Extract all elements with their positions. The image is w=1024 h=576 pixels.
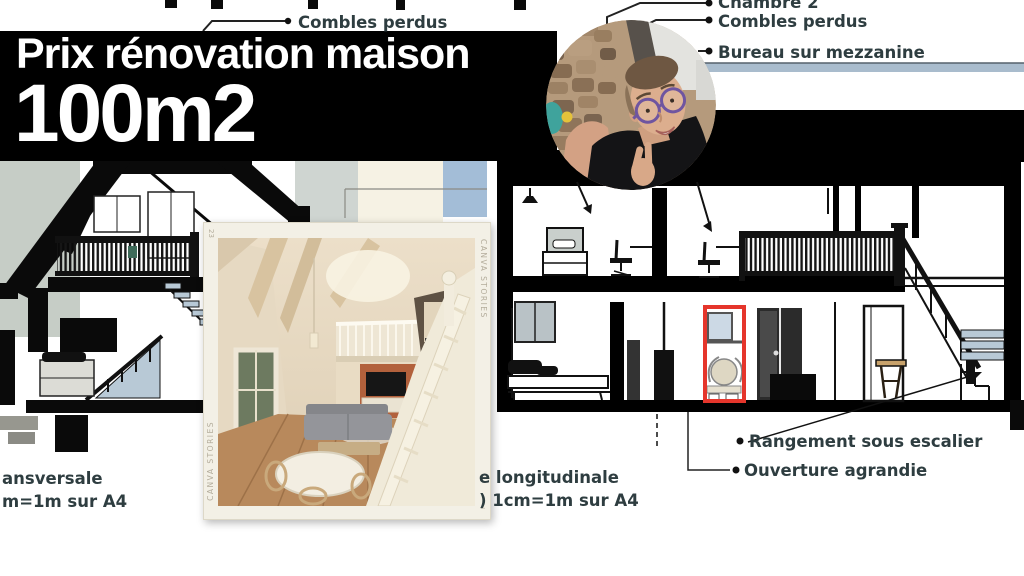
label-rangement-escalier: Rangement sous escalier <box>749 432 982 451</box>
bench <box>40 352 94 396</box>
ground-floor-slab <box>26 400 214 413</box>
presenter-avatar <box>546 20 716 190</box>
label-chambre-2: Chambre 2 <box>718 0 819 12</box>
label-combles-perdus-right: Combles perdus <box>718 12 867 31</box>
blue-accent-bar <box>702 63 1024 72</box>
caption-center: e longitudinale ) 1cm=1m sur A4 <box>479 466 639 512</box>
timber-post <box>28 288 48 352</box>
label-ouverture-agrandie: Ouverture agrandie <box>744 461 927 480</box>
interior-render <box>218 238 475 506</box>
cabinet <box>770 374 816 400</box>
watermark-right: CANVA STORIES <box>479 239 488 319</box>
watermark-number: 23 <box>207 229 215 238</box>
watermark-left: CANVA STORIES <box>206 421 215 501</box>
floor-slab <box>513 276 905 292</box>
presenter-photo <box>546 20 716 190</box>
mezzanine-balustrade <box>739 231 902 281</box>
dresser <box>543 228 587 275</box>
label-combles-perdus-left: Combles perdus <box>298 13 447 32</box>
caption-left-line1: ansversale <box>2 467 127 490</box>
caption-left-line2: m=1m sur A4 <box>2 490 127 513</box>
interior-render-photo: CANVA STORIES CANVA STORIES 23 ▵ <box>203 222 491 520</box>
fireplace <box>60 318 117 352</box>
caption-center-line2: ) 1cm=1m sur A4 <box>479 489 639 512</box>
armchair <box>711 359 737 385</box>
thumbnail-canvas: CANVA STORIES CANVA STORIES 23 ▵ Prix ré… <box>0 0 1024 576</box>
label-bureau-mezzanine: Bureau sur mezzanine <box>718 43 925 62</box>
title-banner: Prix rénovation maison 100m2 <box>0 31 557 161</box>
caption-left: ansversale m=1m sur A4 <box>2 467 127 513</box>
caption-center-line1: e longitudinale <box>479 466 639 489</box>
mezzanine-balustrade <box>55 232 199 278</box>
tv <box>366 372 406 396</box>
mezzanine-floor <box>48 277 214 292</box>
banner-subtitle: 100m2 <box>14 74 557 154</box>
cropped-title-marks <box>165 0 526 10</box>
